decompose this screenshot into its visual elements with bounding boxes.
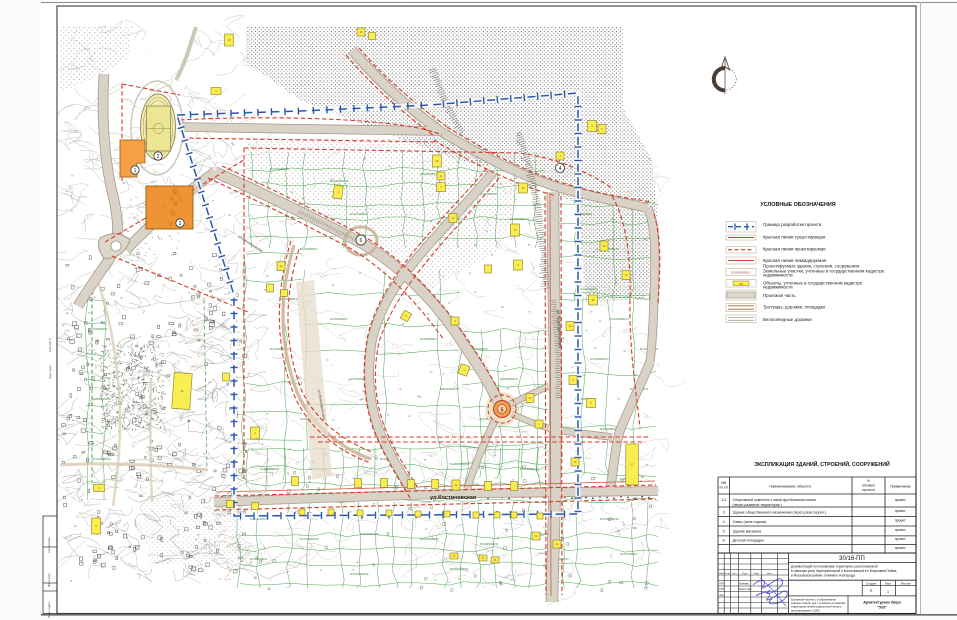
svg-text:Детская площадка: Детская площадка: [733, 539, 764, 543]
svg-text:проект.: проект.: [895, 537, 907, 541]
svg-text:в границах улиц Чернореченской: в границах улиц Чернореченской и Костиче…: [791, 569, 897, 573]
svg-text:39: 39: [739, 282, 743, 286]
svg-text:Взам. инв. N: Взам. инв. N: [50, 338, 52, 352]
svg-text:проект.: проект.: [895, 546, 907, 550]
svg-text:52:18:0000000:31: 52:18:0000000:31: [480, 544, 499, 546]
svg-text:52:18:0000000:20: 52:18:0000000:20: [250, 519, 269, 521]
svg-text:Инв.N подл.: Инв.N подл.: [47, 572, 51, 587]
svg-text:52:18:0000000:8: 52:18:0000000:8: [580, 289, 598, 291]
svg-text:Наименование объекта: Наименование объекта: [769, 485, 811, 489]
svg-text:ЭКСПЛИКАЦИЯ ЗДАНИЙ, СТРОЕНИЙ,: ЭКСПЛИКАЦИЯ ЗДАНИЙ, СТРОЕНИЙ, СООРУЖЕНИЙ: [754, 460, 890, 468]
svg-text:Стадия: Стадия: [866, 581, 877, 585]
svg-text:П: П: [870, 589, 873, 593]
svg-text:Спортивный комплекс с мини-фут: Спортивный комплекс с мини-футбольным по…: [733, 498, 817, 502]
svg-text:3: 3: [723, 511, 725, 515]
svg-text:Согласовано: Согласовано: [47, 537, 51, 553]
svg-text:УСЛОВНЫЕ ОБОЗНАЧЕНИЯ: УСЛОВНЫЕ ОБОЗНАЧЕНИЯ: [760, 202, 835, 208]
svg-text:Дата: Дата: [767, 573, 773, 575]
svg-text:по пл: по пл: [719, 486, 727, 490]
svg-text:52:18:0000000:20: 52:18:0000000:20: [260, 469, 279, 471]
svg-text:Подп. и дата: Подп. и дата: [50, 365, 52, 379]
svg-text:52:18:0000000:24: 52:18:0000000:24: [450, 464, 469, 466]
svg-text:проект.: проект.: [895, 509, 907, 513]
svg-text:Тротуары, дорожки, площадки: Тротуары, дорожки, площадки: [763, 305, 825, 310]
svg-text:6: 6: [360, 238, 363, 244]
svg-text:52:18:0000000:32: 52:18:0000000:32: [92, 459, 111, 461]
svg-text:52:18:0000000:2: 52:18:0000000:2: [350, 214, 368, 216]
svg-text:регулирования 1:1000: регулирования 1:1000: [791, 608, 820, 612]
svg-text:"5х5": "5х5": [877, 606, 887, 610]
svg-text:52:18:0000000:21: 52:18:0000000:21: [450, 569, 469, 571]
svg-text:проект.: проект.: [895, 519, 907, 523]
svg-text:1,2: 1,2: [721, 498, 726, 502]
svg-text:52:18:0000000:2: 52:18:0000000:2: [620, 554, 638, 556]
svg-text:52:18:0000000:3: 52:18:0000000:3: [250, 559, 268, 561]
svg-text:Здание магазина: Здание магазина: [733, 530, 762, 534]
svg-text:1: 1: [134, 168, 137, 174]
svg-text:Велосипедные дорожки: Велосипедные дорожки: [763, 317, 812, 322]
svg-text:52:18:0000000:14: 52:18:0000000:14: [520, 469, 539, 471]
svg-text:52:18:0000000:17: 52:18:0000000:17: [500, 379, 519, 381]
svg-text:Лист: Лист: [885, 581, 892, 585]
svg-text:(персп.развитие территории ): (персп.развитие территории ): [733, 503, 782, 507]
svg-text:ГИП: ГИП: [719, 584, 724, 586]
svg-text:Граница разработки проекта: Граница разработки проекта: [763, 222, 822, 227]
svg-text:52:18:0000000:40: 52:18:0000000:40: [600, 519, 619, 521]
svg-text:проект.: проект.: [895, 528, 907, 532]
svg-text:Здание общественного назначени: Здание общественного назначения (персп.р…: [733, 511, 826, 515]
svg-text:Архитектурное бюро: Архитектурное бюро: [863, 601, 901, 605]
svg-text:52:18:0000000:41: 52:18:0000000:41: [420, 174, 439, 176]
svg-text:Подп: Подп: [754, 573, 760, 575]
svg-text:Красная линия существующая: Красная линия существующая: [763, 235, 826, 240]
svg-text:2: 2: [157, 154, 160, 160]
svg-text:52:18:0000000:32: 52:18:0000000:32: [350, 574, 369, 576]
svg-text:52:18:0000000:14: 52:18:0000000:14: [270, 169, 289, 171]
svg-text:52:18:0000000:35: 52:18:0000000:35: [330, 181, 349, 183]
svg-text:N док: N док: [742, 573, 748, 575]
svg-text:3: 3: [179, 221, 182, 227]
svg-text:Волкова: Волкова: [739, 583, 749, 586]
svg-text:52:18:0000000:2: 52:18:0000000:2: [300, 249, 318, 251]
svg-text:52:18:0000000:28: 52:18:0000000:28: [300, 539, 319, 541]
svg-text:52:18:0000000:14: 52:18:0000000:14: [610, 319, 629, 321]
svg-text:Кол.уч: Кол.уч: [724, 573, 731, 575]
svg-text:52:18:0000000:3: 52:18:0000000:3: [90, 329, 108, 331]
svg-text:30/16-ПП: 30/16-ПП: [839, 556, 865, 562]
svg-text:Лист: Лист: [732, 573, 737, 575]
svg-text:52:18:0000000:1: 52:18:0000000:1: [731, 271, 751, 275]
svg-text:недвижимости: недвижимости: [763, 273, 793, 278]
svg-text:52:18:0000000:1: 52:18:0000000:1: [420, 339, 438, 341]
svg-text:4: 4: [559, 166, 562, 172]
svg-text:5: 5: [500, 407, 503, 413]
svg-text:Листов: Листов: [901, 581, 911, 585]
svg-text:ГАП: ГАП: [719, 588, 724, 591]
svg-text:типового: типового: [862, 484, 876, 488]
svg-text:проект.: проект.: [895, 498, 907, 502]
svg-text:Берестова: Берестова: [739, 588, 751, 591]
svg-text:в Московском районе г.Нижнего: в Московском районе г.Нижнего Новгорода: [791, 573, 855, 577]
svg-text:Проезжая часть: Проезжая часть: [763, 293, 796, 298]
svg-text:*: *: [740, 258, 742, 263]
svg-text:NN: NN: [721, 481, 726, 485]
svg-text:Подп. и дата: Подп. и дата: [47, 602, 51, 618]
svg-text:52:18:0000000:38: 52:18:0000000:38: [420, 539, 439, 541]
svg-text:6: 6: [723, 539, 725, 543]
svg-text:4: 4: [723, 520, 725, 524]
svg-text:52:18:0000000:40: 52:18:0000000:40: [360, 534, 379, 536]
svg-text:Сквер (зона отдыха): Сквер (зона отдыха): [733, 520, 767, 524]
svg-text:Документация по планировке тер: Документация по планировке территории, р…: [791, 565, 878, 569]
svg-text:5: 5: [723, 530, 725, 534]
svg-text:52:18:0000000:7: 52:18:0000000:7: [480, 194, 498, 196]
svg-text:52:18:0000000:13: 52:18:0000000:13: [510, 219, 529, 221]
svg-text:Примечание: Примечание: [890, 485, 911, 489]
svg-text:1: 1: [887, 590, 889, 594]
svg-text:Красная линия проектируемая: Красная линия проектируемая: [763, 247, 826, 252]
svg-text:52:18:0000000:12: 52:18:0000000:12: [590, 359, 609, 361]
svg-text:52:18:0000000:8: 52:18:0000000:8: [330, 319, 348, 321]
svg-text:проекта: проекта: [862, 488, 874, 492]
svg-text:недвижимости: недвижимости: [763, 285, 793, 290]
